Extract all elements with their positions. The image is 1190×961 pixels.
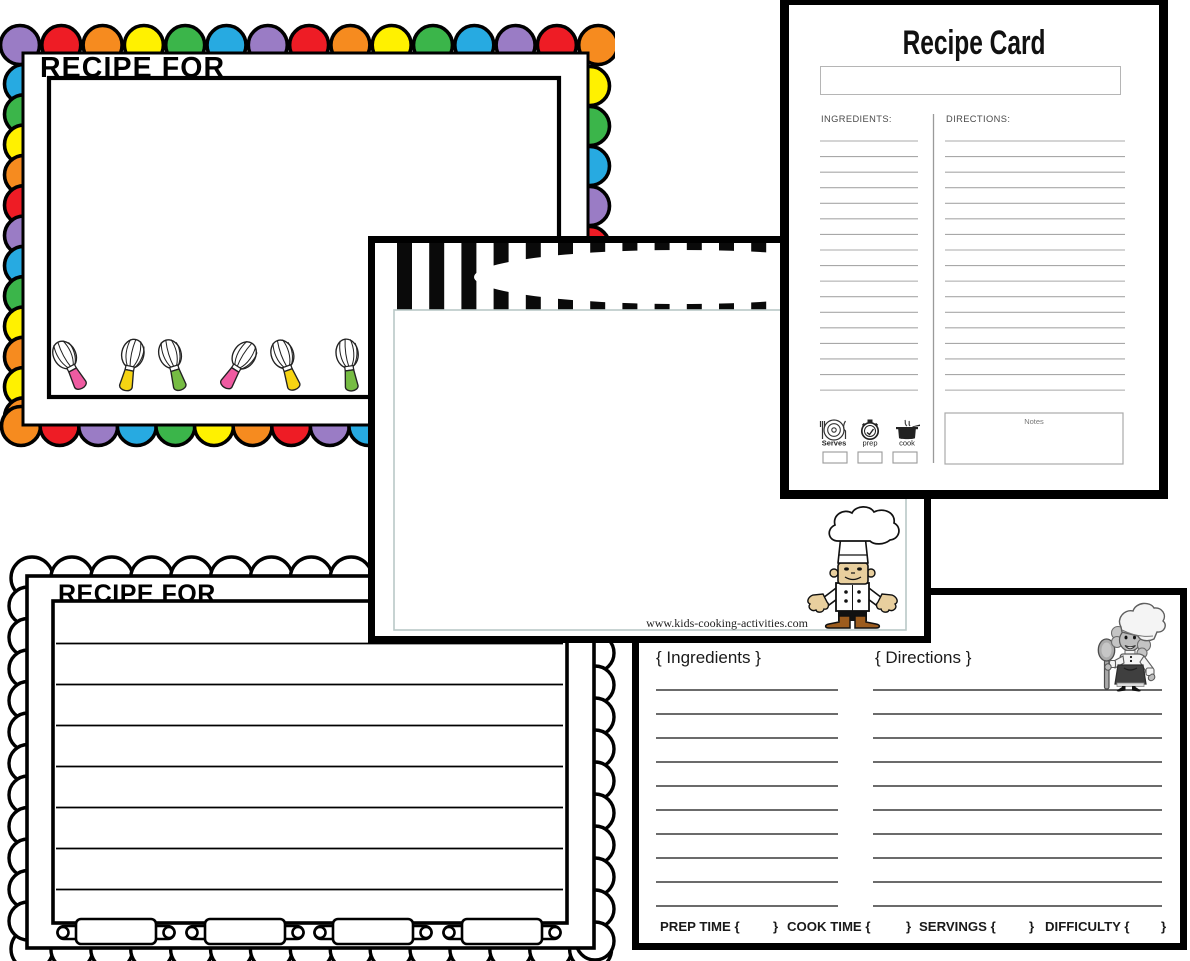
svg-text:prep: prep	[862, 439, 877, 448]
svg-text:RECIPE FOR: RECIPE FOR	[40, 52, 225, 84]
svg-text:Serves: Serves	[822, 439, 847, 448]
svg-text:cook: cook	[899, 439, 915, 448]
svg-text:Notes: Notes	[1024, 417, 1044, 426]
svg-text:RECIPE FOR: RECIPE FOR	[58, 580, 216, 608]
svg-text:www.kids-cooking-activities.co: www.kids-cooking-activities.com	[646, 616, 809, 630]
